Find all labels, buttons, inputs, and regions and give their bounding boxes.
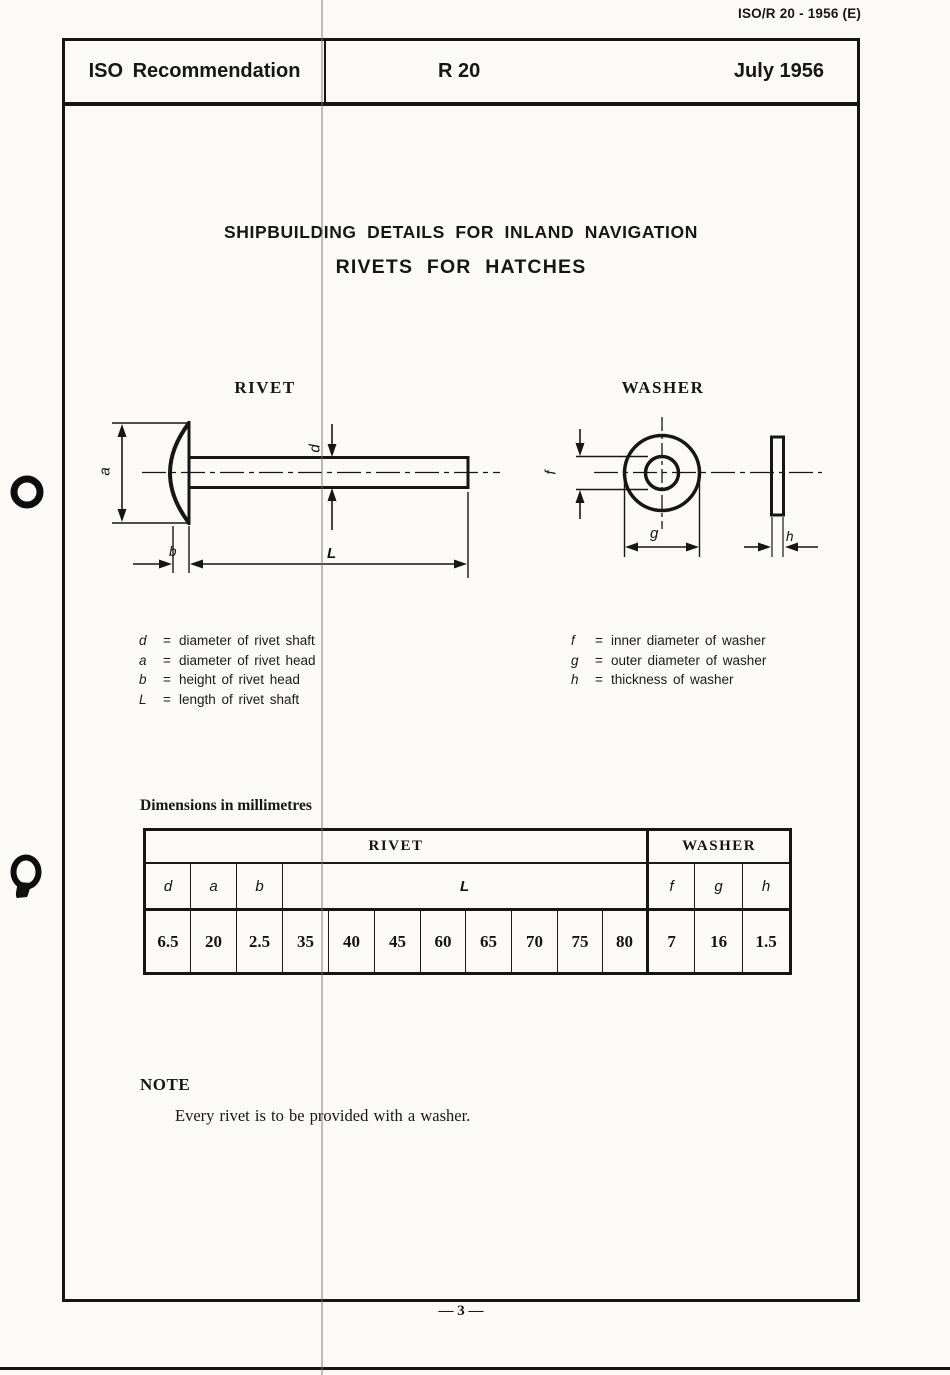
value-f: 7 (648, 910, 695, 974)
dimensions-table: RIVET WASHER d a b L f g h 6.5 20 2.5 35… (143, 828, 792, 975)
legend-row: g = outer diameter of washer (571, 651, 766, 671)
legend-symbol: d (139, 631, 155, 651)
legend-row: d = diameter of rivet shaft (139, 631, 316, 651)
rivet-dim-label-b: b (169, 544, 177, 559)
value-h: 1.5 (743, 910, 791, 974)
value-L: 60 (421, 910, 466, 974)
washer-dim-label-f: f (543, 470, 560, 474)
washer-dim-label-h: h (786, 529, 794, 544)
rivet-dim-label-L: L (327, 545, 336, 562)
col-header-h: h (743, 863, 791, 910)
legend-desc: outer diameter of washer (611, 651, 766, 671)
table-section-row: RIVET WASHER (145, 830, 791, 864)
col-header-a: a (191, 863, 237, 910)
equals-sign: = (587, 670, 611, 690)
header-date: July 1956 (734, 41, 824, 102)
legend-rivet: d = diameter of rivet shaft a = diameter… (139, 631, 316, 709)
legend-symbol: b (139, 670, 155, 690)
legend-desc: inner diameter of washer (611, 631, 766, 651)
equals-sign: = (587, 651, 611, 671)
table-header-row: d a b L f g h (145, 863, 791, 910)
legend-symbol: f (571, 631, 587, 651)
legend-row: L = length of rivet shaft (139, 690, 316, 710)
legend-symbol: a (139, 651, 155, 671)
col-header-b: b (237, 863, 283, 910)
legend-symbol: h (571, 670, 587, 690)
value-a: 20 (191, 910, 237, 974)
equals-sign: = (155, 651, 179, 671)
scan-fold-line (321, 0, 323, 1375)
value-b: 2.5 (237, 910, 283, 974)
legend-desc: height of rivet head (179, 670, 300, 690)
legend-desc: diameter of rivet head (179, 651, 316, 671)
legend-row: f = inner diameter of washer (571, 631, 766, 651)
legend-row: b = height of rivet head (139, 670, 316, 690)
value-L: 70 (512, 910, 558, 974)
equals-sign: = (155, 690, 179, 710)
legend-desc: thickness of washer (611, 670, 734, 690)
legend-desc: length of rivet shaft (179, 690, 299, 710)
legend-symbol: L (139, 690, 155, 710)
header-left-title: ISO Recommendation (65, 41, 326, 102)
punch-hole-balloon-icon (14, 858, 39, 899)
value-L: 65 (466, 910, 512, 974)
value-L: 75 (558, 910, 603, 974)
section-header-washer: WASHER (648, 830, 791, 864)
header-bar: ISO Recommendation R 20 July 1956 (62, 38, 860, 106)
header-standard-number: R 20 (438, 41, 480, 102)
table-value-row: 6.5 20 2.5 35 40 45 60 65 70 75 80 7 16 … (145, 910, 791, 974)
equals-sign: = (155, 631, 179, 651)
col-header-f: f (648, 863, 695, 910)
col-header-L: L (283, 863, 648, 910)
punch-hole-ring-icon (14, 479, 40, 505)
section-header-rivet: RIVET (145, 830, 648, 864)
document-page: ISO/R 20 - 1956 (E) ISO Recommendation R… (0, 0, 950, 1375)
value-L: 40 (329, 910, 375, 974)
value-L: 80 (603, 910, 648, 974)
value-d: 6.5 (145, 910, 191, 974)
equals-sign: = (587, 631, 611, 651)
rivet-dim-label-a: a (97, 467, 114, 475)
value-L: 45 (375, 910, 421, 974)
legend-row: h = thickness of washer (571, 670, 766, 690)
equals-sign: = (155, 670, 179, 690)
value-g: 16 (695, 910, 743, 974)
col-header-g: g (695, 863, 743, 910)
legend-desc: diameter of rivet shaft (179, 631, 315, 651)
legend-symbol: g (571, 651, 587, 671)
col-header-d: d (145, 863, 191, 910)
washer-dim-label-g: g (650, 525, 658, 542)
legend-row: a = diameter of rivet head (139, 651, 316, 671)
legend-washer: f = inner diameter of washer g = outer d… (571, 631, 766, 690)
